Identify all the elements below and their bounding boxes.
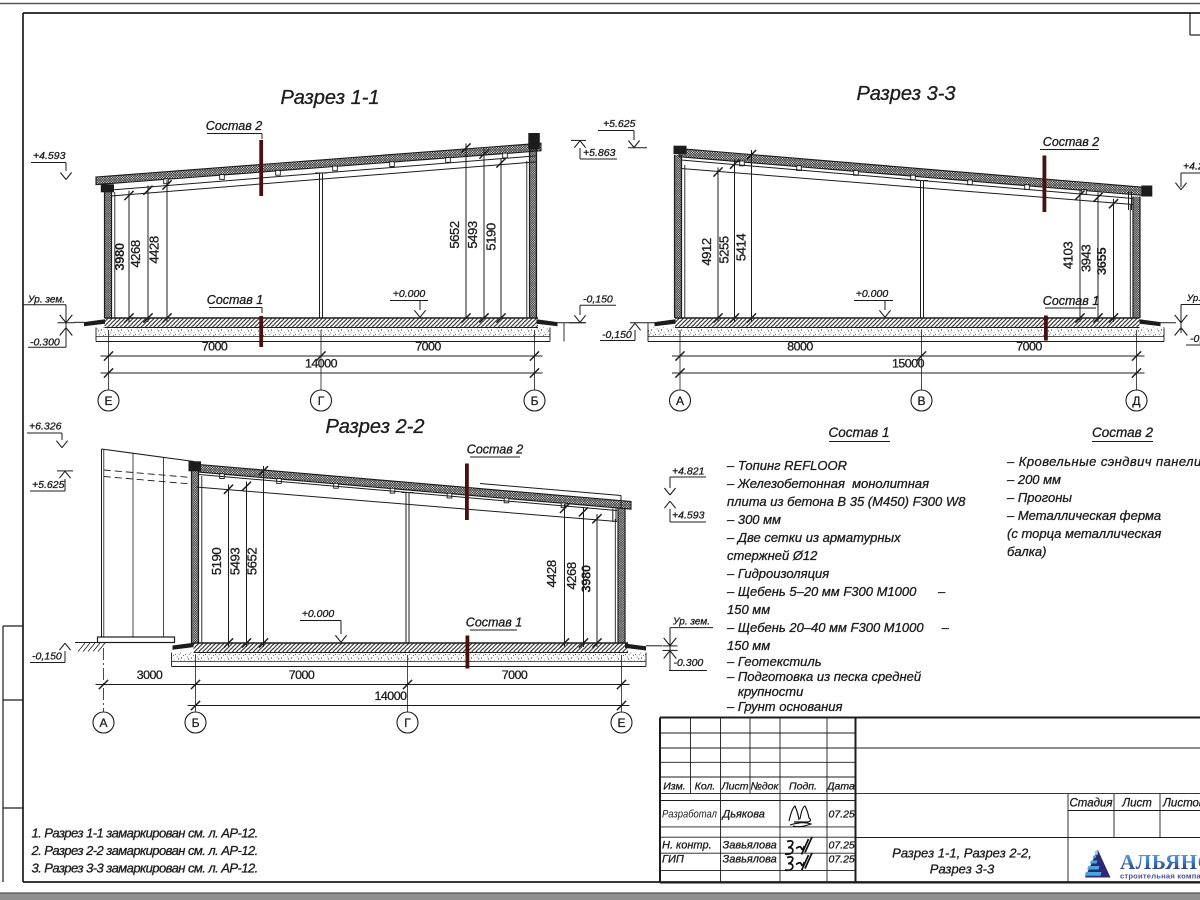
svg-text:Г: Г xyxy=(404,716,411,730)
svg-text:-0,150: -0,150 xyxy=(32,651,62,663)
svg-text:+4.593: +4.593 xyxy=(672,510,705,522)
svg-text:Разрез 3-3: Разрез 3-3 xyxy=(856,83,955,105)
svg-text:– Геотекстиль: – Геотекстиль xyxy=(726,654,822,669)
svg-text:Лист: Лист xyxy=(1121,798,1152,810)
svg-text:5493: 5493 xyxy=(465,221,480,249)
svg-text:Д: Д xyxy=(1132,394,1140,408)
svg-text:Состав 1: Состав 1 xyxy=(466,616,522,630)
svg-text:+6.326: +6.326 xyxy=(29,421,62,433)
svg-text:– 300 мм: – 300 мм xyxy=(726,512,781,527)
svg-text:Состав 2: Состав 2 xyxy=(1043,135,1099,149)
svg-text:– Подготовка из песка средней: – Подготовка из песка средней xyxy=(726,669,921,684)
svg-text:Изм.: Изм. xyxy=(663,781,685,793)
svg-text:-0,300: -0,300 xyxy=(1190,333,1200,345)
svg-text:Е: Е xyxy=(104,394,112,408)
svg-text:Состав 1: Состав 1 xyxy=(207,293,263,307)
svg-text:плита из бетона В 35 (М450) F3: плита из бетона В 35 (М450) F300 W8 xyxy=(727,494,966,509)
svg-text:+0.000: +0.000 xyxy=(393,288,426,300)
svg-text:14000: 14000 xyxy=(305,357,338,371)
svg-text:А: А xyxy=(99,716,107,730)
svg-text:Дьякова: Дьякова xyxy=(721,809,765,821)
svg-text:7000: 7000 xyxy=(502,668,528,682)
svg-text:7000: 7000 xyxy=(289,668,315,682)
svg-text:– Металлическая ферма: – Металлическая ферма xyxy=(1006,508,1161,523)
svg-text:Разработал: Разработал xyxy=(662,809,717,821)
svg-text:5493: 5493 xyxy=(228,548,243,576)
svg-text:– Гидроизоляция: – Гидроизоляция xyxy=(726,566,829,581)
svg-text:5255: 5255 xyxy=(717,236,732,264)
svg-text:Б: Б xyxy=(192,716,200,730)
svg-text:-0.300: -0.300 xyxy=(30,337,60,349)
svg-text:№док: №док xyxy=(751,781,780,793)
svg-text:3655: 3655 xyxy=(1094,248,1109,276)
svg-text:5190: 5190 xyxy=(484,223,499,251)
svg-text:+0.000: +0.000 xyxy=(302,608,335,620)
svg-text:Завьялова: Завьялова xyxy=(723,840,777,852)
svg-text:4268: 4268 xyxy=(128,240,143,268)
svg-text:Состав 1: Состав 1 xyxy=(829,425,890,440)
svg-text:4428: 4428 xyxy=(544,560,559,588)
svg-text:(с торца металлическая: (с торца металлическая xyxy=(1007,526,1161,541)
svg-text:– Прогоны: – Прогоны xyxy=(1006,490,1072,505)
svg-text:Ур. зем.: Ур. зем. xyxy=(1186,293,1200,304)
svg-text:07.25: 07.25 xyxy=(829,840,855,852)
svg-text:Листов: Листов xyxy=(1162,798,1200,810)
svg-text:7000: 7000 xyxy=(202,340,228,354)
svg-text:Разрез 2-2: Разрез 2-2 xyxy=(325,416,424,438)
svg-text:В: В xyxy=(917,394,925,408)
svg-text:+4.26: +4.26 xyxy=(1183,161,1200,173)
svg-text:5652: 5652 xyxy=(447,221,462,249)
svg-text:Разрез 3-3: Разрез 3-3 xyxy=(930,862,995,877)
svg-text:+4.821: +4.821 xyxy=(672,466,704,478)
svg-text:3. Разрез 3-3 замаркирован см.: 3. Разрез 3-3 замаркирован см. л. АР-12. xyxy=(32,861,258,876)
svg-text:07.25: 07.25 xyxy=(829,854,855,866)
svg-text:+0.000: +0.000 xyxy=(856,288,889,300)
svg-text:ГИП: ГИП xyxy=(662,854,684,866)
svg-text:15000: 15000 xyxy=(892,357,925,371)
svg-text:Состав 2: Состав 2 xyxy=(1092,425,1153,440)
svg-text:150 мм: 150 мм xyxy=(727,602,770,617)
svg-text:– Топинг REFLOOR: – Топинг REFLOOR xyxy=(726,458,847,473)
svg-text:– Щебень 5–20 мм F300 М1000: – Щебень 5–20 мм F300 М1000 – xyxy=(726,584,946,599)
svg-text:АЛЬЯНС: АЛЬЯНС xyxy=(1120,850,1200,874)
svg-text:Подп.: Подп. xyxy=(789,781,817,793)
svg-text:– Грунт основания: – Грунт основания xyxy=(726,699,842,714)
svg-text:– Две сетки из арматурных: – Две сетки из арматурных xyxy=(726,530,901,545)
svg-text:Е: Е xyxy=(617,716,625,730)
svg-text:Лист: Лист xyxy=(720,781,748,793)
svg-text:Завьялова: Завьялова xyxy=(723,854,777,866)
svg-text:Б: Б xyxy=(531,394,539,408)
svg-text:– 200 мм: – 200 мм xyxy=(1006,472,1061,487)
svg-text:7000: 7000 xyxy=(415,340,441,354)
svg-text:150 мм: 150 мм xyxy=(727,638,770,653)
svg-text:Состав 1: Состав 1 xyxy=(1043,294,1099,308)
svg-text:+5.863: +5.863 xyxy=(583,147,616,159)
svg-text:– Кровельные сэндвич панели: – Кровельные сэндвич панели xyxy=(1006,454,1200,469)
svg-text:+4.593: +4.593 xyxy=(33,150,66,162)
svg-text:14000: 14000 xyxy=(375,689,408,703)
svg-text:3980: 3980 xyxy=(112,243,127,271)
svg-text:А: А xyxy=(676,394,684,408)
svg-text:Н. контр.: Н. контр. xyxy=(662,840,712,852)
svg-text:5652: 5652 xyxy=(245,548,260,576)
svg-text:Разрез 1-1: Разрез 1-1 xyxy=(280,87,379,109)
svg-text:-0,150: -0,150 xyxy=(583,294,613,306)
svg-text:– Железобетонная монолитная: – Железобетонная монолитная xyxy=(726,476,929,491)
svg-text:Разрез 1-1, Разрез 2-2,: Разрез 1-1, Разрез 2-2, xyxy=(892,846,1032,861)
svg-text:балка): балка) xyxy=(1007,544,1046,559)
svg-text:-0.300: -0.300 xyxy=(674,657,704,669)
svg-text:Кол.: Кол. xyxy=(695,781,716,793)
svg-text:Стадия: Стадия xyxy=(1069,798,1112,810)
svg-text:стержней Ø12: стержней Ø12 xyxy=(727,548,818,563)
svg-text:4912: 4912 xyxy=(699,238,714,266)
svg-text:4103: 4103 xyxy=(1061,242,1076,270)
svg-text:2. Разрез 2-2 замаркирован см.: 2. Разрез 2-2 замаркирован см. л. АР-12. xyxy=(31,843,258,858)
svg-text:Ур. зем.: Ур. зем. xyxy=(672,617,710,628)
svg-text:Дата: Дата xyxy=(826,781,855,793)
svg-text:8000: 8000 xyxy=(787,340,813,354)
svg-text:Г: Г xyxy=(318,394,325,408)
svg-text:крупности: крупности xyxy=(727,684,803,699)
svg-text:4428: 4428 xyxy=(147,236,162,264)
svg-text:3980: 3980 xyxy=(579,565,594,593)
svg-text:строительная компания: строительная компания xyxy=(1120,872,1200,881)
svg-text:1. Разрез 1-1 замаркирован см.: 1. Разрез 1-1 замаркирован см. л. АР-12. xyxy=(32,826,258,841)
svg-text:3000: 3000 xyxy=(137,668,163,682)
svg-text:7000: 7000 xyxy=(1016,340,1042,354)
svg-text:Ур. зем.: Ур. зем. xyxy=(27,295,65,306)
svg-text:Состав 2: Состав 2 xyxy=(467,443,523,457)
svg-text:5414: 5414 xyxy=(734,234,749,262)
svg-text:3943: 3943 xyxy=(1079,245,1094,273)
svg-text:07.25: 07.25 xyxy=(829,809,855,821)
svg-text:– Щебень 20–40 мм F300 М1000: – Щебень 20–40 мм F300 М1000 – xyxy=(726,620,950,635)
svg-text:+5.625: +5.625 xyxy=(32,479,65,491)
svg-text:+5.625: +5.625 xyxy=(603,118,636,130)
svg-text:4268: 4268 xyxy=(564,562,579,590)
svg-text:5190: 5190 xyxy=(209,548,224,576)
svg-text:Состав 2: Состав 2 xyxy=(206,119,262,133)
svg-text:-0,150: -0,150 xyxy=(602,329,632,341)
